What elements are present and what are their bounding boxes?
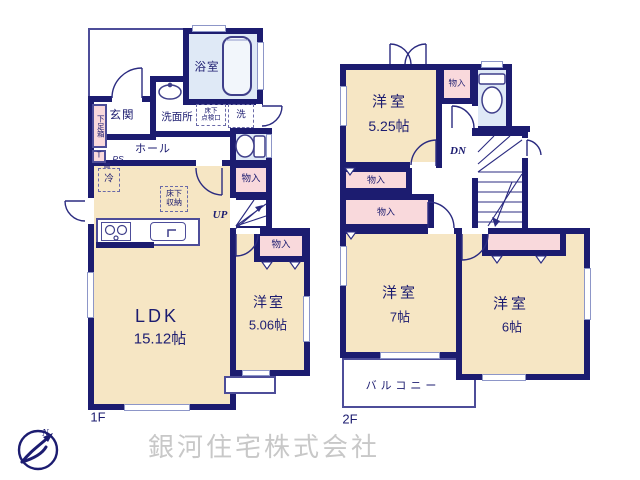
label-closet-1f-b: 物入 — [271, 241, 290, 252]
western-7-door — [428, 202, 454, 228]
label-shoe-box-t: T — [97, 152, 102, 161]
compass-n-label: N — [41, 428, 50, 439]
label-stairs-up: UP — [213, 209, 228, 221]
label-ps: PS — [112, 155, 123, 165]
room-label-western-7-size: 7帖 — [390, 311, 410, 326]
label-balcony: バルコニー — [366, 380, 441, 392]
toilet-2f-door — [452, 106, 474, 128]
casement-window-right — [405, 44, 426, 64]
room-label-bath: 浴室 — [195, 62, 220, 75]
compass-north-icon: N — [19, 428, 57, 469]
room-label-hall: ホール — [135, 143, 171, 155]
room-label-ldk-size: 15.12帖 — [134, 332, 187, 349]
label-closet-2f-a: 物入 — [367, 175, 385, 185]
company-watermark: 銀河住宅株式会社 — [148, 433, 380, 462]
label-closet-2f-top: 物入 — [448, 79, 465, 89]
western-1f-door — [236, 234, 258, 256]
label-washer: 洗 — [236, 111, 246, 122]
stairs-window — [527, 140, 541, 156]
floorplan-symbols: N — [0, 0, 640, 480]
kitchen-side-door — [65, 201, 85, 221]
label-closet-1f-a: 物入 — [241, 175, 260, 186]
room-label-western-1f: 洋室 — [253, 295, 285, 311]
room-label-western-525: 洋室 — [372, 95, 408, 112]
sliding-door-notches — [262, 168, 546, 269]
back-door — [262, 106, 282, 126]
room-label-western-1f-size: 5.06帖 — [249, 319, 287, 334]
label-underfloor-access: 床下 点検口 — [201, 108, 221, 123]
floor-label-2f: 2F — [342, 413, 357, 428]
label-stairs-dn: DN — [450, 145, 466, 157]
toilet-icon — [236, 135, 265, 157]
room-label-entrance: 玄関 — [110, 110, 135, 123]
label-closet-2f-b: 物入 — [377, 207, 395, 217]
sink-icon — [159, 83, 181, 99]
stove-burners — [106, 226, 127, 241]
room-label-western-6: 洋室 — [493, 297, 529, 314]
room-label-washroom: 洗面所 — [161, 112, 193, 124]
western-6-door — [462, 234, 488, 260]
stairs-2f-treads — [478, 136, 522, 226]
label-underfloor-storage: 床下 収納 — [166, 190, 182, 208]
toilet-icon — [479, 74, 505, 113]
floor-label-1f: 1F — [90, 411, 105, 426]
label-shoe-box: 下足箱 — [96, 115, 104, 138]
floorplan: N 浴室 玄関 洗面所 床下 点検口 洗 下足箱 T ホール PS 冷 床下 収… — [0, 0, 640, 480]
ldk-door — [196, 168, 222, 195]
room-label-western-7: 洋室 — [382, 286, 418, 303]
room-label-ldk: LDK — [135, 306, 179, 326]
ps-ticks — [104, 164, 110, 167]
room-label-western-525-size: 5.25帖 — [368, 119, 409, 135]
room-label-western-6-size: 6帖 — [502, 321, 522, 336]
western-525-door — [411, 140, 436, 166]
entrance-door — [112, 68, 142, 98]
kitchen-faucet — [168, 230, 176, 237]
stairs-1f-treads — [234, 200, 266, 230]
label-fridge: 冷 — [104, 175, 114, 186]
